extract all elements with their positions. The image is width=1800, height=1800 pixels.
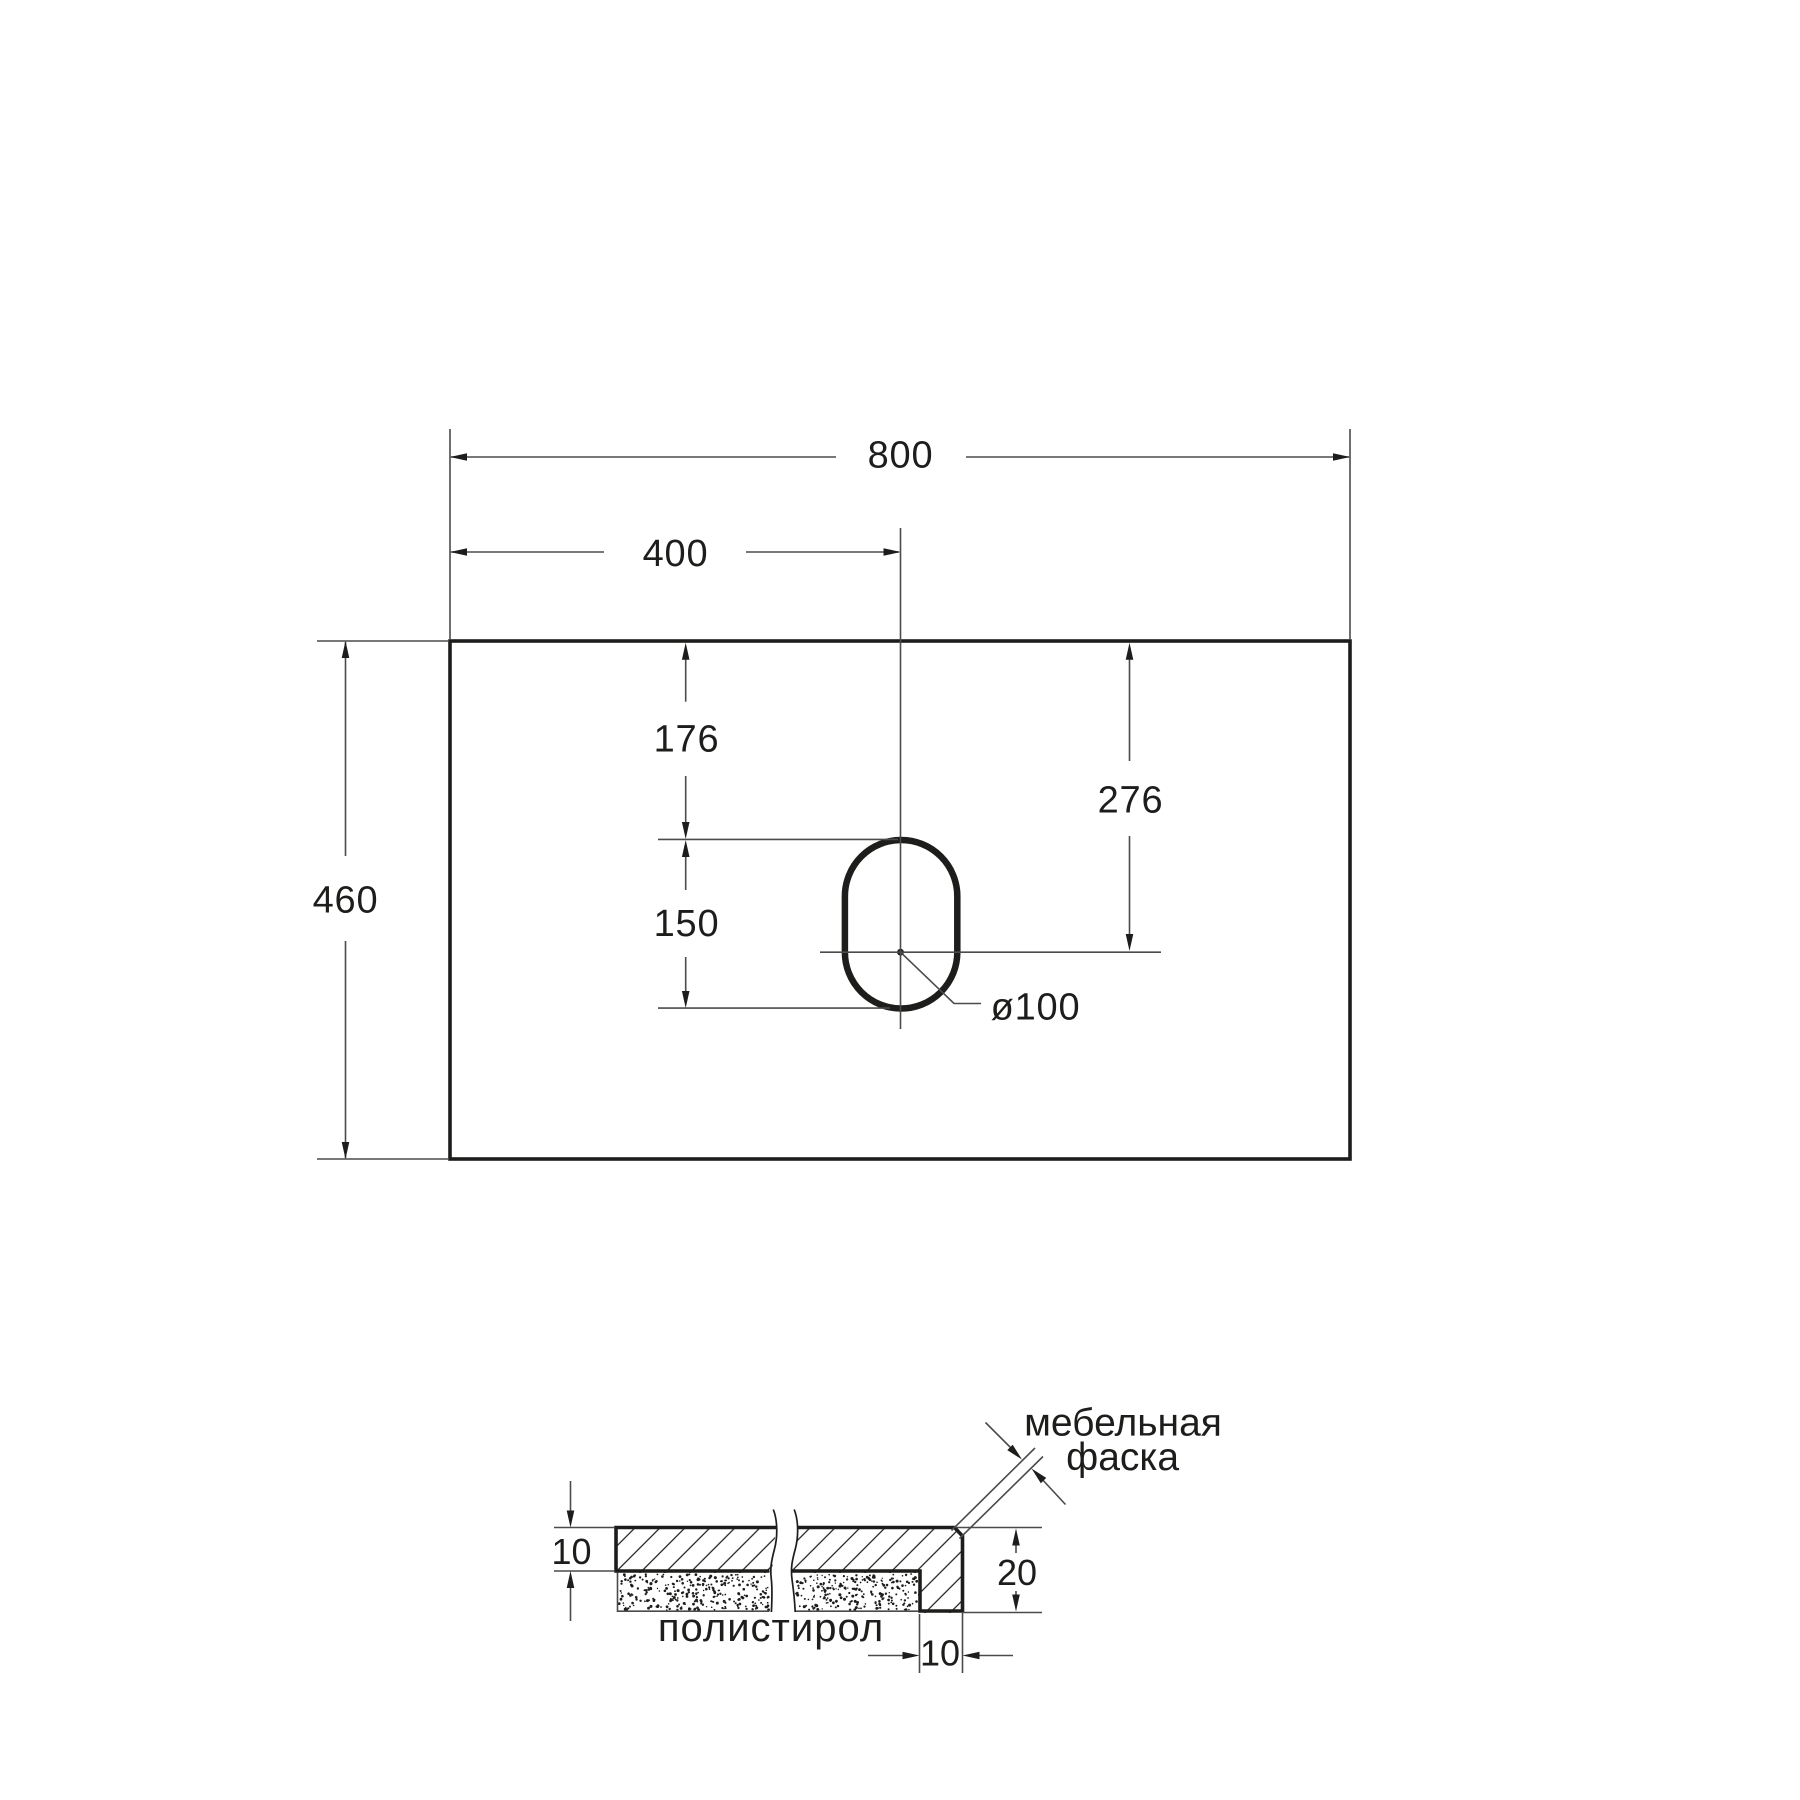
- svg-text:176: 176: [654, 719, 720, 761]
- svg-text:ø100: ø100: [991, 987, 1081, 1029]
- svg-text:10: 10: [920, 1633, 960, 1674]
- svg-text:276: 276: [1098, 780, 1164, 822]
- svg-text:20: 20: [997, 1552, 1037, 1593]
- svg-text:800: 800: [868, 434, 934, 476]
- svg-text:150: 150: [654, 903, 720, 945]
- svg-text:400: 400: [643, 533, 709, 575]
- svg-text:фаска: фаска: [1066, 1436, 1179, 1479]
- svg-text:10: 10: [551, 1531, 591, 1572]
- svg-text:460: 460: [313, 880, 379, 922]
- svg-text:полистирол: полистирол: [658, 1606, 884, 1650]
